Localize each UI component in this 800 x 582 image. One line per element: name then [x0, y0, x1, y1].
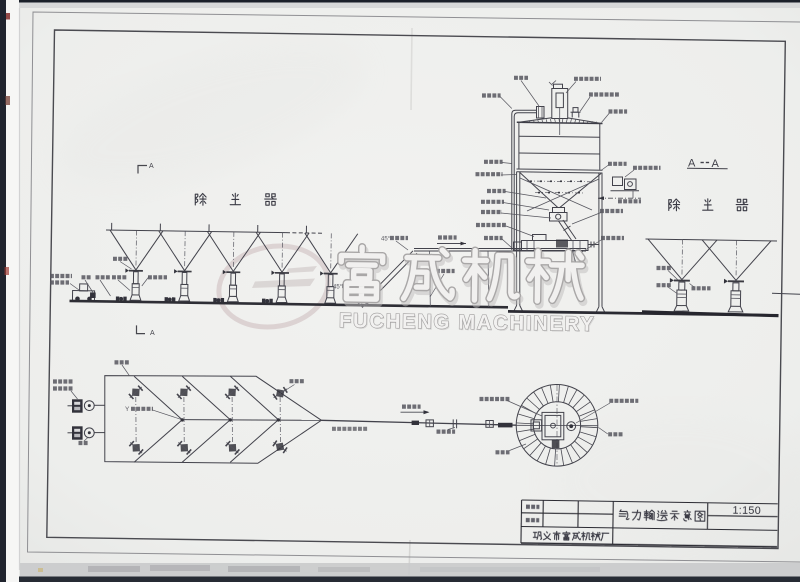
svg-text:1:150: 1:150: [732, 505, 761, 517]
svg-text:Y: Y: [125, 406, 130, 413]
svg-text:A: A: [149, 163, 154, 170]
svg-text:45°: 45°: [333, 285, 343, 291]
svg-text:A: A: [150, 330, 155, 337]
svg-text:45°: 45°: [381, 237, 391, 243]
svg-text:A: A: [712, 158, 720, 170]
svg-text:FUCHENG MACHINERY: FUCHENG MACHINERY: [339, 310, 596, 336]
svg-text:A: A: [688, 158, 696, 170]
